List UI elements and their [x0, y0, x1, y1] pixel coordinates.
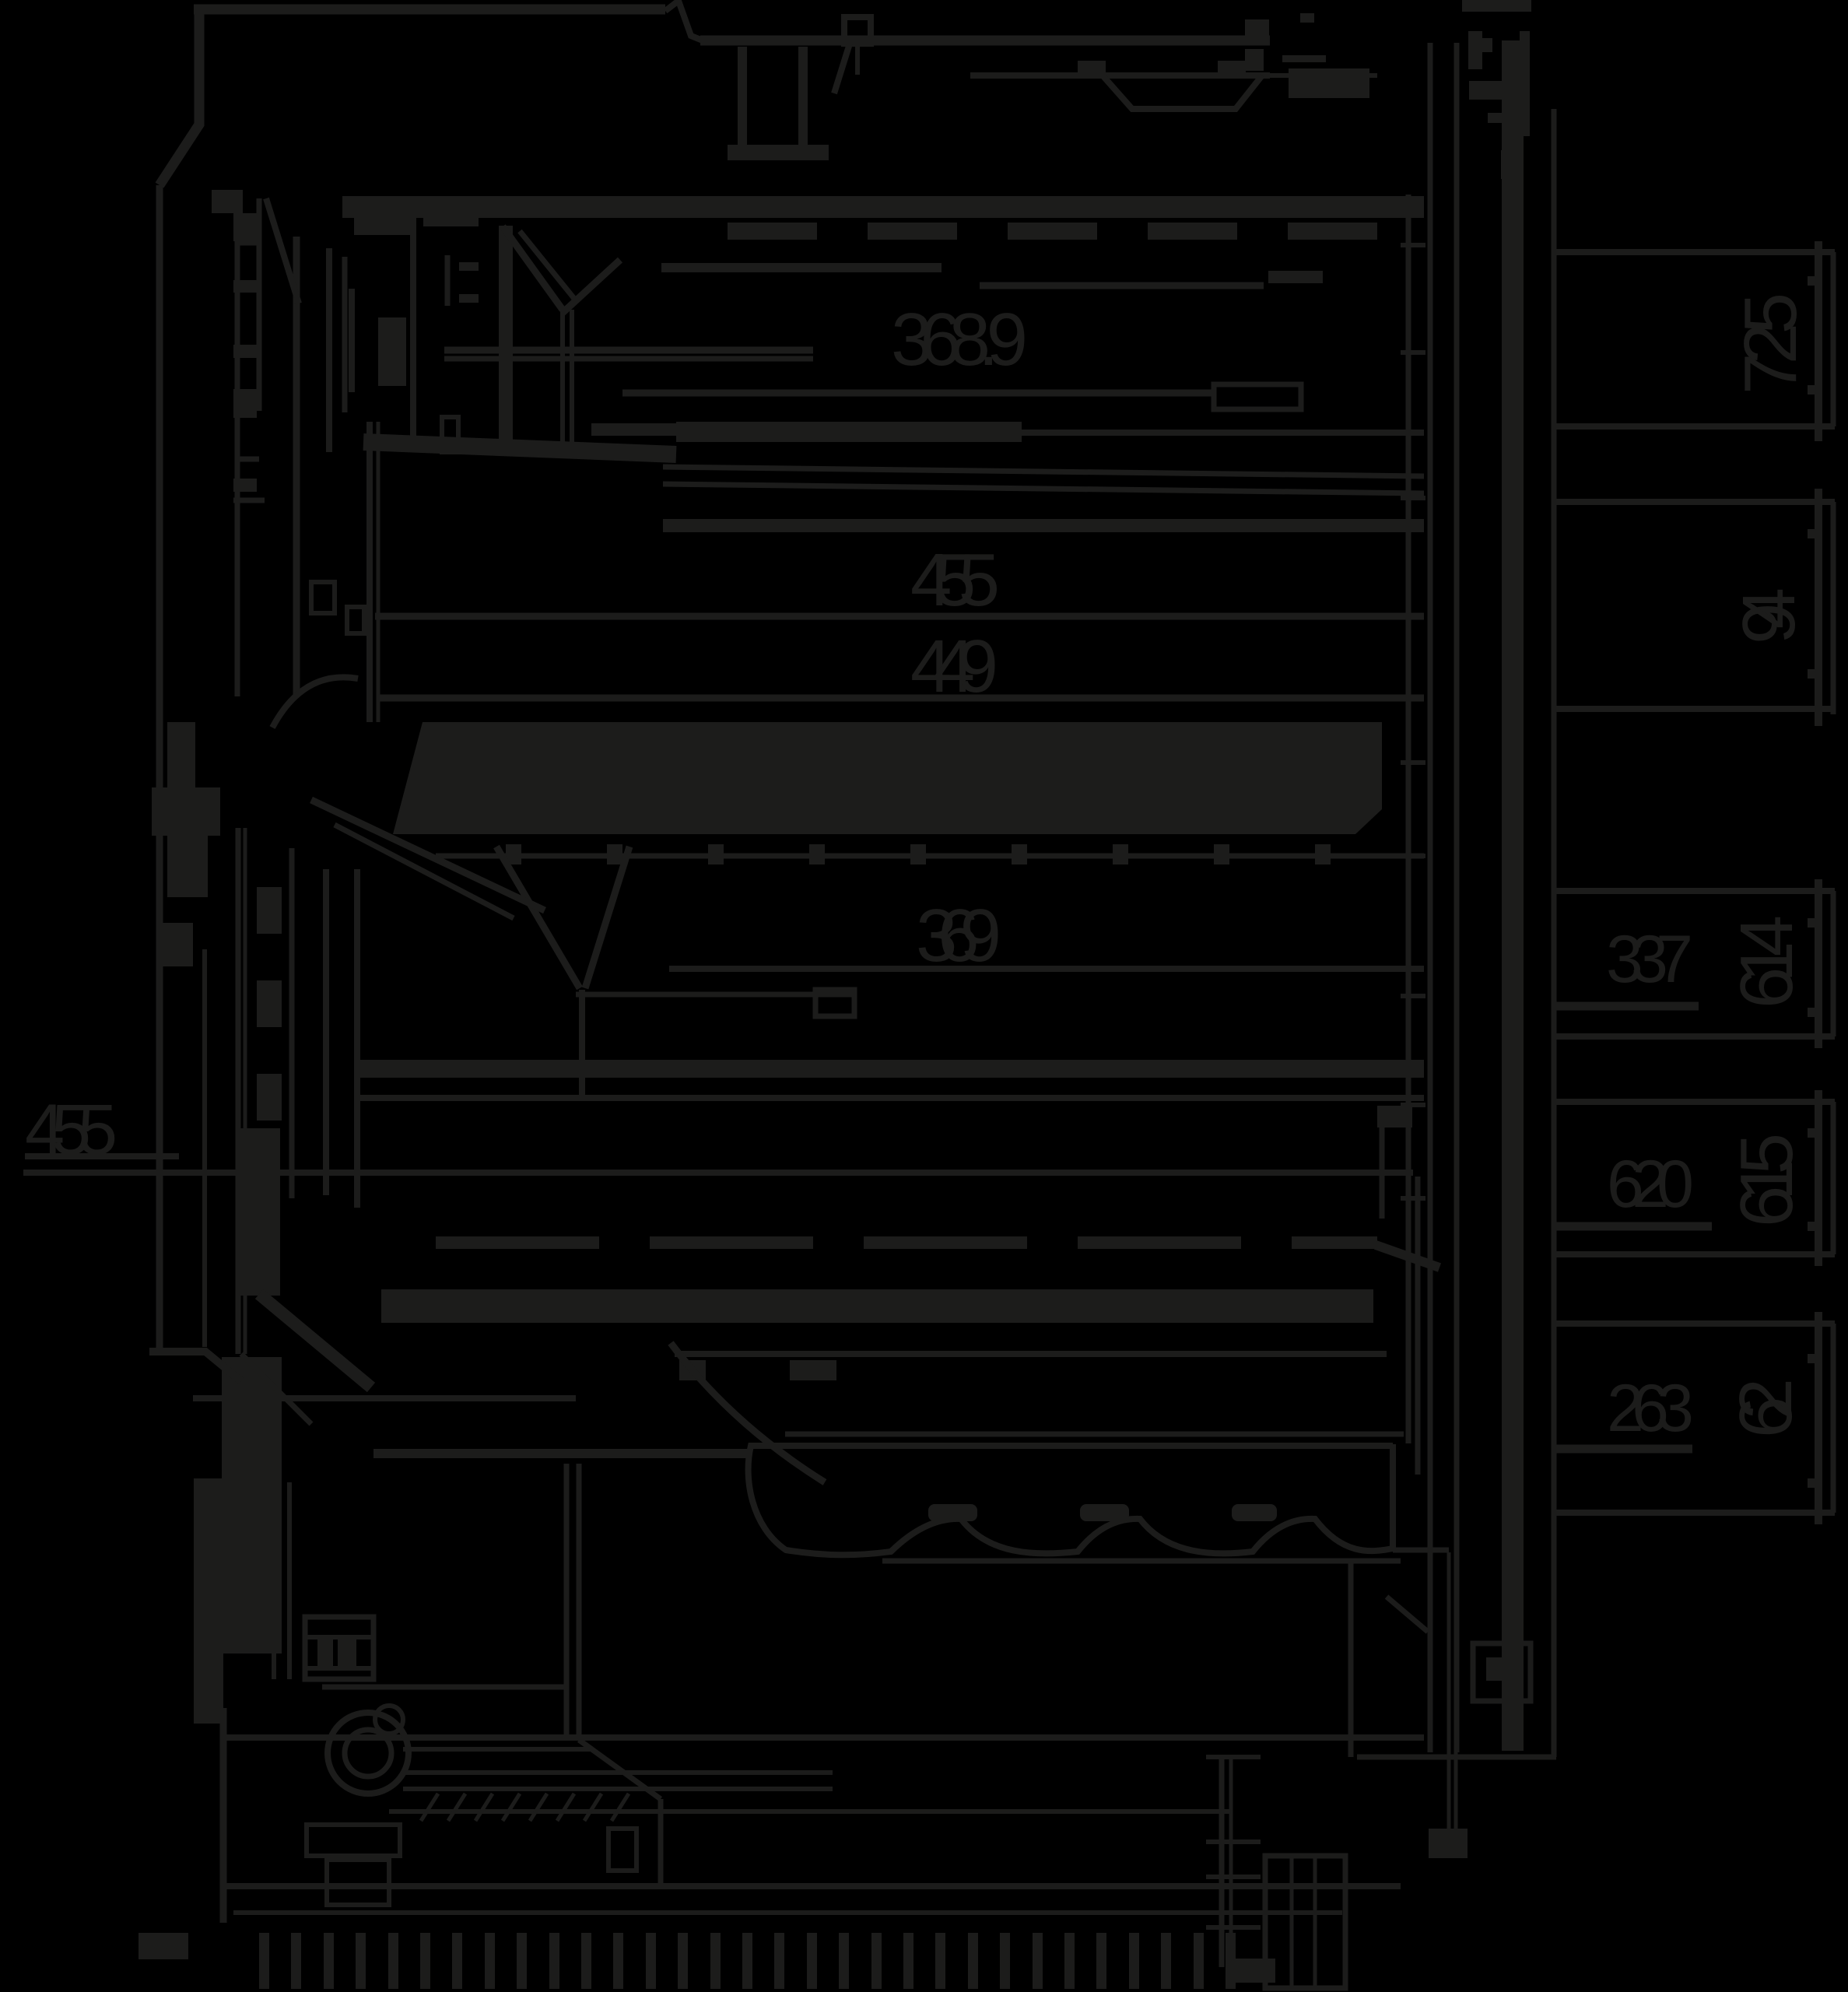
svg-text:263: 263: [1607, 1371, 1694, 1446]
svg-text:94: 94: [1727, 587, 1811, 644]
svg-text:614: 614: [1725, 915, 1808, 1008]
svg-text:62: 62: [1724, 1378, 1808, 1438]
svg-text:620: 620: [1607, 1147, 1694, 1222]
svg-text:455: 455: [910, 538, 1000, 622]
svg-text:725: 725: [1729, 293, 1812, 395]
svg-text:368.9: 368.9: [891, 298, 1028, 381]
svg-text:369: 369: [916, 894, 1001, 977]
svg-text:337: 337: [1606, 922, 1693, 997]
svg-text:615: 615: [1725, 1133, 1808, 1227]
